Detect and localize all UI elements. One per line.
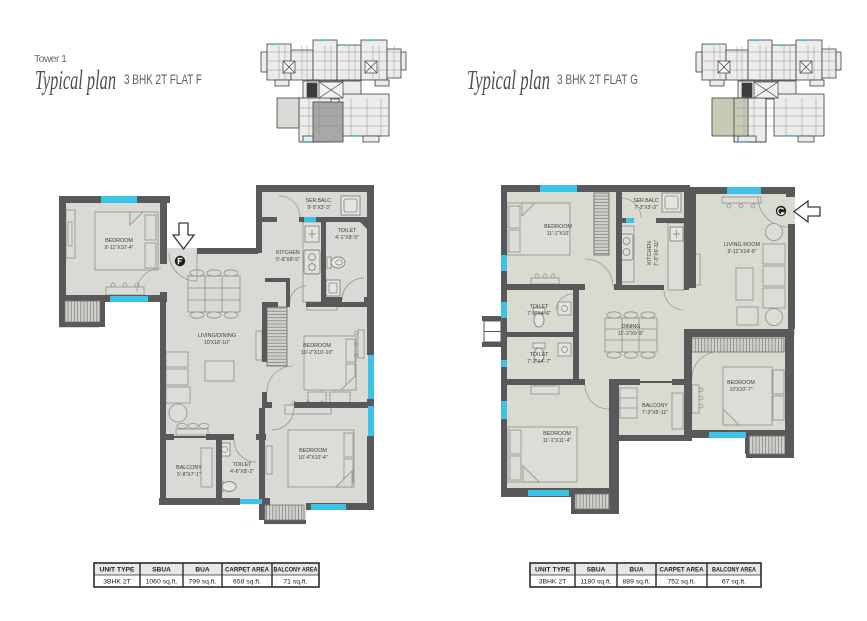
svg-text:5'-8"X7'-1": 5'-8"X7'-1": [177, 472, 201, 478]
svg-text:Typical plan: Typical plan: [35, 65, 116, 95]
svg-text:BEDROOM: BEDROOM: [543, 431, 571, 437]
svg-text:BALCONY AREA: BALCONY AREA: [712, 567, 756, 574]
svg-text:11'-1"X10': 11'-1"X10': [547, 231, 570, 237]
svg-text:3 BHK 2T FLAT G: 3 BHK 2T FLAT G: [557, 72, 638, 87]
svg-text:11'-1"X11'-4": 11'-1"X11'-4": [543, 438, 572, 444]
svg-text:DINING: DINING: [622, 324, 641, 330]
svg-text:SER.BALC: SER.BALC: [633, 198, 659, 204]
svg-text:LIVING/DINING: LIVING/DINING: [198, 333, 236, 339]
svg-text:KITCHEN: KITCHEN: [276, 250, 300, 256]
svg-text:CARPET AREA: CARPET AREA: [660, 567, 704, 574]
svg-text:BEDROOM: BEDROOM: [544, 224, 572, 230]
svg-text:889 sq.ft.: 889 sq.ft.: [623, 579, 651, 586]
svg-text:BALCONY: BALCONY: [176, 465, 202, 471]
svg-text:3 BHK 2T FLAT F: 3 BHK 2T FLAT F: [124, 72, 202, 87]
svg-text:UNIT TYPE: UNIT TYPE: [535, 567, 571, 574]
svg-text:10'X10'-7": 10'X10'-7": [729, 387, 752, 393]
svg-text:BALCONY AREA: BALCONY AREA: [274, 567, 318, 574]
svg-text:UNIT TYPE: UNIT TYPE: [100, 567, 136, 574]
svg-text:TOILET: TOILET: [338, 228, 357, 234]
svg-text:SBUA: SBUA: [152, 567, 171, 574]
svg-text:BALCONY: BALCONY: [642, 403, 668, 409]
svg-text:1180 sq.ft.: 1180 sq.ft.: [580, 579, 611, 586]
svg-text:BEDROOM: BEDROOM: [303, 343, 331, 349]
svg-text:KITCHEN: KITCHEN: [647, 241, 653, 265]
svg-text:799 sq.ft.: 799 sq.ft.: [189, 579, 217, 586]
svg-text:Typical plan: Typical plan: [467, 65, 550, 95]
svg-text:BEDROOM: BEDROOM: [299, 448, 327, 454]
svg-text:7'-3"X5'-11": 7'-3"X5'-11": [642, 410, 668, 416]
svg-text:7'-3"X4'-7": 7'-3"X4'-7": [527, 359, 551, 365]
svg-text:TOILET: TOILET: [530, 352, 549, 358]
svg-text:BEDROOM: BEDROOM: [105, 238, 133, 244]
svg-text:658 sq.ft.: 658 sq.ft.: [233, 579, 261, 586]
svg-text:7'-3"X6'-11": 7'-3"X6'-11": [654, 240, 660, 266]
svg-text:BUA: BUA: [629, 567, 644, 574]
svg-text:9'-11"X10'-4": 9'-11"X10'-4": [105, 245, 134, 251]
svg-text:7'-3"X4'-6": 7'-3"X4'-6": [527, 311, 551, 317]
svg-text:SBUA: SBUA: [587, 567, 606, 574]
svg-text:1060 sq.ft.: 1060 sq.ft.: [146, 579, 178, 586]
svg-text:71 sq.ft.: 71 sq.ft.: [283, 579, 307, 586]
svg-text:5'-9"X8'-5": 5'-9"X8'-5": [276, 257, 300, 263]
svg-text:BUA: BUA: [195, 567, 210, 574]
svg-text:TOILET: TOILET: [233, 462, 252, 468]
svg-text:3BHK 2T: 3BHK 2T: [103, 579, 131, 586]
svg-text:11'-3"X9'-5": 11'-3"X9'-5": [618, 331, 644, 337]
svg-text:TOILET: TOILET: [530, 304, 549, 310]
svg-text:9'-11"X14'-6": 9'-11"X14'-6": [728, 249, 757, 255]
svg-text:67 sq.ft.: 67 sq.ft.: [722, 579, 746, 586]
svg-text:Tower 1: Tower 1: [34, 53, 67, 65]
svg-text:752 sq.ft.: 752 sq.ft.: [668, 579, 696, 586]
svg-text:9'-5"X3'-3": 9'-5"X3'-3": [307, 205, 330, 211]
svg-text:10'-2"X10'-10": 10'-2"X10'-10": [301, 350, 333, 356]
svg-text:3BHK 2T: 3BHK 2T: [539, 579, 567, 586]
svg-text:7'-3"X3'-3": 7'-3"X3'-3": [634, 205, 657, 211]
svg-text:SER.BALC.: SER.BALC.: [306, 198, 333, 204]
svg-text:4'-6"X8'-2": 4'-6"X8'-2": [230, 469, 254, 475]
svg-text:10'X18'-10": 10'X18'-10": [204, 340, 230, 346]
svg-text:CARPET AREA: CARPET AREA: [225, 567, 269, 574]
svg-text:4'-1"X8'-5": 4'-1"X8'-5": [335, 235, 359, 241]
svg-text:BEDROOM: BEDROOM: [727, 380, 755, 386]
svg-text:10'-4"X10'-4": 10'-4"X10'-4": [298, 455, 328, 461]
svg-text:LIVING ROOM: LIVING ROOM: [724, 242, 760, 248]
